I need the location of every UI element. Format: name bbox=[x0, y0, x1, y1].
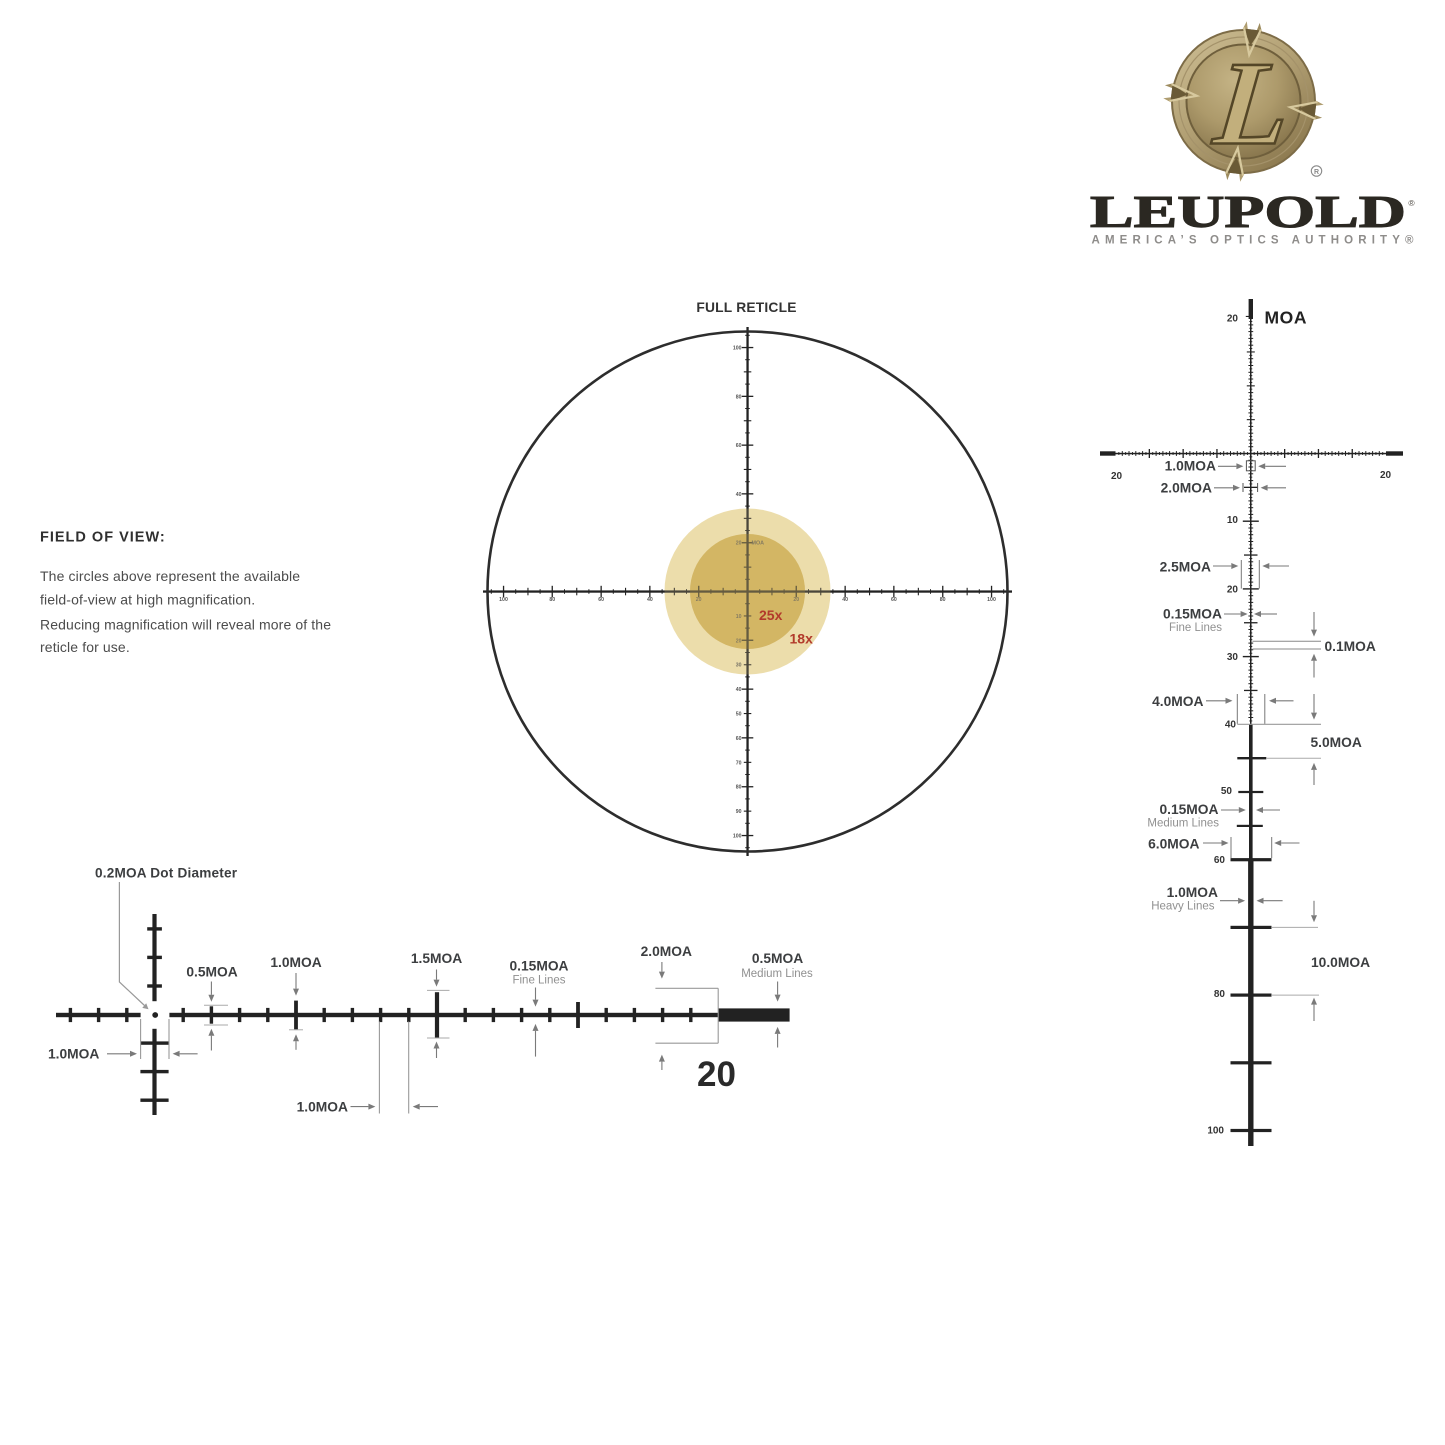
svg-text:100: 100 bbox=[733, 346, 742, 352]
svg-text:30: 30 bbox=[1227, 652, 1239, 663]
svg-text:FULL RETICLE: FULL RETICLE bbox=[696, 300, 796, 315]
svg-text:1.0MOA: 1.0MOA bbox=[1165, 459, 1216, 474]
svg-text:Medium Lines: Medium Lines bbox=[1147, 818, 1219, 830]
svg-text:Fine Lines: Fine Lines bbox=[1169, 622, 1222, 634]
svg-text:0.15MOA: 0.15MOA bbox=[1159, 802, 1218, 817]
svg-text:10: 10 bbox=[1227, 515, 1239, 526]
svg-text:40: 40 bbox=[1225, 720, 1237, 731]
svg-text:40: 40 bbox=[736, 492, 742, 498]
svg-text:20: 20 bbox=[1227, 585, 1239, 596]
svg-text:0.5MOA: 0.5MOA bbox=[186, 965, 237, 980]
svg-text:100: 100 bbox=[1207, 1126, 1224, 1137]
svg-text:80: 80 bbox=[736, 394, 742, 400]
svg-text:80: 80 bbox=[1214, 989, 1226, 1000]
svg-text:10.0MOA: 10.0MOA bbox=[1311, 955, 1370, 970]
svg-text:6.0MOA: 6.0MOA bbox=[1148, 836, 1199, 851]
svg-text:60: 60 bbox=[736, 736, 742, 742]
svg-text:90: 90 bbox=[736, 809, 742, 815]
svg-text:0.2MOA Dot Diameter: 0.2MOA Dot Diameter bbox=[95, 866, 238, 881]
svg-text:40: 40 bbox=[842, 597, 848, 603]
svg-text:Heavy Lines: Heavy Lines bbox=[1151, 900, 1215, 912]
svg-text:60: 60 bbox=[891, 597, 897, 603]
svg-text:FIELD OF VIEW:: FIELD OF VIEW: bbox=[40, 530, 166, 546]
svg-text:100: 100 bbox=[987, 597, 996, 603]
svg-text:2.0MOA: 2.0MOA bbox=[1161, 481, 1212, 496]
svg-text:0.15MOA: 0.15MOA bbox=[1163, 607, 1222, 622]
svg-text:field-of-view at high magnific: field-of-view at high magnification. bbox=[40, 591, 255, 607]
svg-text:L: L bbox=[1208, 38, 1296, 171]
svg-text:20: 20 bbox=[1227, 314, 1239, 325]
svg-text:20: 20 bbox=[1380, 470, 1392, 481]
svg-text:0.1MOA: 0.1MOA bbox=[1325, 639, 1376, 654]
svg-text:20: 20 bbox=[1111, 471, 1123, 482]
svg-text:Fine Lines: Fine Lines bbox=[512, 975, 565, 987]
svg-text:reticle for use.: reticle for use. bbox=[40, 639, 130, 655]
svg-text:100: 100 bbox=[733, 834, 742, 840]
svg-text:The circles above represent th: The circles above represent the availabl… bbox=[40, 568, 300, 584]
svg-text:40: 40 bbox=[736, 687, 742, 693]
svg-text:60: 60 bbox=[598, 597, 604, 603]
svg-text:2.5MOA: 2.5MOA bbox=[1160, 560, 1211, 575]
svg-text:0.5MOA: 0.5MOA bbox=[752, 951, 803, 966]
svg-text:1.0MOA: 1.0MOA bbox=[297, 1100, 348, 1115]
svg-text:50: 50 bbox=[1221, 786, 1233, 797]
svg-text:R: R bbox=[1314, 169, 1319, 176]
svg-text:2.0MOA: 2.0MOA bbox=[641, 944, 692, 959]
svg-text:18x: 18x bbox=[790, 631, 814, 647]
svg-text:1.0MOA: 1.0MOA bbox=[270, 955, 321, 970]
svg-text:1.5MOA: 1.5MOA bbox=[411, 951, 462, 966]
svg-text:40: 40 bbox=[647, 597, 653, 603]
svg-text:80: 80 bbox=[736, 785, 742, 791]
svg-text:60: 60 bbox=[736, 443, 742, 449]
svg-text:MOA: MOA bbox=[1265, 308, 1308, 328]
svg-text:60: 60 bbox=[1214, 855, 1226, 866]
svg-text:®: ® bbox=[1408, 198, 1415, 208]
svg-text:Reducing magnification will re: Reducing magnification will reveal more … bbox=[40, 616, 331, 632]
svg-text:20: 20 bbox=[697, 1055, 736, 1094]
svg-text:1.0MOA: 1.0MOA bbox=[48, 1047, 99, 1062]
svg-text:80: 80 bbox=[549, 597, 555, 603]
svg-text:25x: 25x bbox=[759, 607, 783, 623]
svg-text:0.15MOA: 0.15MOA bbox=[509, 959, 568, 974]
svg-text:1.0MOA: 1.0MOA bbox=[1167, 885, 1218, 900]
svg-text:80: 80 bbox=[940, 597, 946, 603]
svg-text:100: 100 bbox=[499, 597, 508, 603]
svg-text:4.0MOA: 4.0MOA bbox=[1152, 694, 1203, 709]
svg-text:70: 70 bbox=[736, 760, 742, 766]
svg-text:Medium Lines: Medium Lines bbox=[741, 968, 813, 980]
svg-text:5.0MOA: 5.0MOA bbox=[1311, 735, 1362, 750]
svg-text:50: 50 bbox=[736, 712, 742, 718]
svg-text:LEUPOLD: LEUPOLD bbox=[1090, 187, 1406, 237]
